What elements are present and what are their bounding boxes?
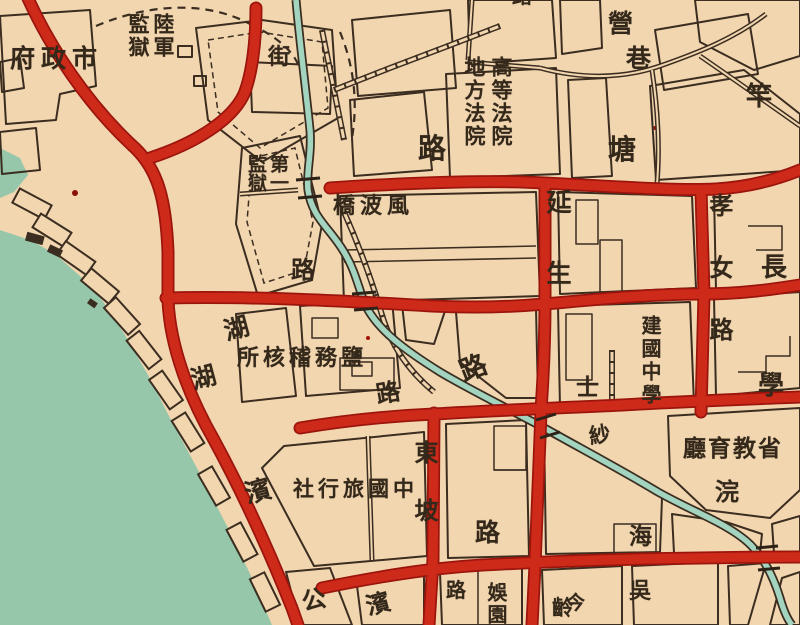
label-lu-xueshi: 路	[374, 379, 402, 407]
label-jin: 今	[566, 594, 585, 613]
label-sha: 紗	[587, 422, 611, 446]
label-xiaonu-road: 孝女路	[707, 193, 731, 379]
label-jie-street: 街	[268, 46, 290, 68]
label-yuyuan: 娛園	[486, 582, 506, 625]
label-city-government: 府政市	[10, 46, 103, 71]
label-jianguo-school: 建國中學	[640, 315, 660, 407]
label-army-prison: 陸軍 監獄	[126, 13, 176, 59]
label-gan: 竿	[746, 84, 772, 110]
label-huan: 浣	[715, 480, 739, 504]
label-shi: 士	[576, 376, 599, 399]
label-xiang: 巷	[626, 46, 651, 71]
label-top-partial-char: 路	[512, 0, 532, 6]
label-lu-prison: 路	[291, 258, 315, 282]
label-ying: 營	[608, 11, 633, 36]
label-china-travel-service: 社行旅國中	[293, 478, 418, 499]
label-yansheng-road: 延生	[545, 189, 570, 331]
map-canvas	[0, 0, 800, 625]
label-wu: 吳	[629, 580, 651, 602]
label-lu-dongpo: 路	[475, 520, 500, 545]
label-chang: 長	[761, 255, 787, 281]
label-courts: 高等法院 地方法院	[461, 56, 515, 148]
label-salt-office: 所核稽務鹽	[237, 347, 367, 369]
label-first-prison: 第一 監獄	[245, 154, 289, 192]
label-xue: 學	[758, 373, 784, 399]
historical-city-map: 府政市 陸軍 監獄 街 營 巷 竿 塘 路 高等法院 地方法院 第一 監獄 橋波…	[0, 0, 800, 625]
label-fengbo-bridge: 橋波風	[333, 195, 414, 217]
label-lu-south: 路	[446, 580, 466, 600]
label-hai: 海	[629, 525, 652, 548]
label-lu-north: 路	[418, 135, 446, 163]
label-tang: 塘	[608, 136, 636, 164]
label-education-dept: 廳育教省	[683, 437, 783, 460]
label-gong: 公	[300, 586, 328, 614]
